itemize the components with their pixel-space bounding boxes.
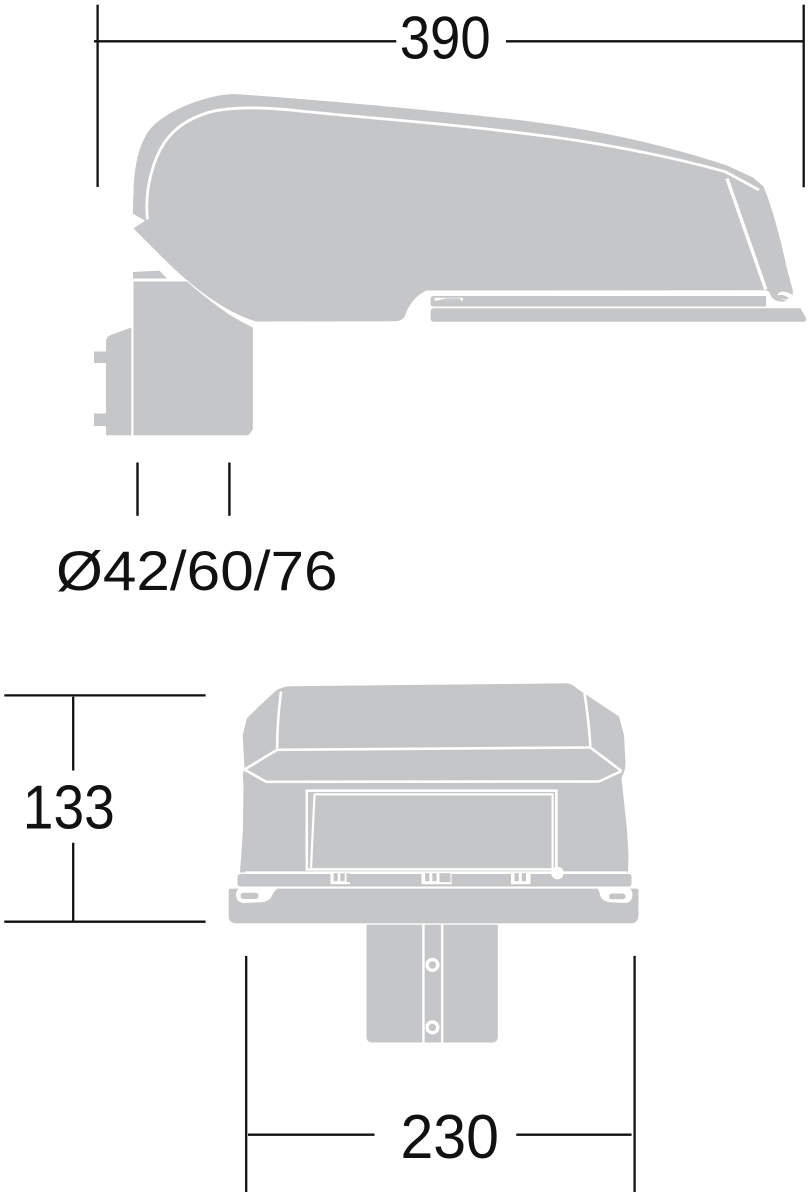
svg-text:390: 390	[400, 5, 491, 72]
svg-text:Ø42/60/76: Ø42/60/76	[56, 539, 338, 602]
svg-text:133: 133	[23, 774, 115, 843]
svg-text:230: 230	[400, 1103, 499, 1172]
